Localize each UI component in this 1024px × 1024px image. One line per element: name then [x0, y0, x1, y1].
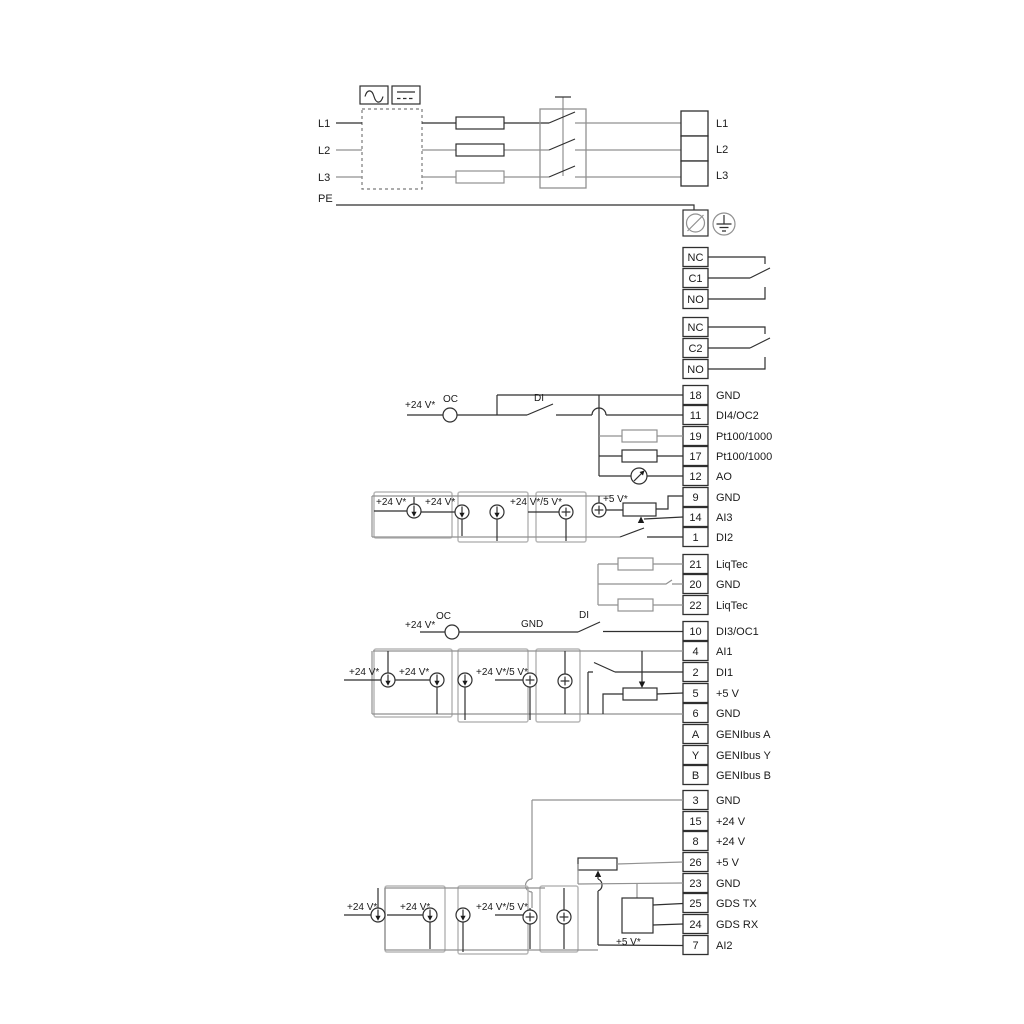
terminal-label: DI2 — [716, 532, 733, 544]
wiring-diagram: L1 L2 L3 PE L1 L2 — [0, 0, 1024, 1024]
terminal-cell-l3 — [681, 161, 708, 186]
relay2-nc-label: NC — [688, 322, 704, 334]
sensor-loop-icon — [523, 673, 537, 687]
wires-switch-to-terminals — [575, 123, 681, 177]
terminal-num: 6 — [692, 708, 698, 720]
mains-out-l1-label: L1 — [716, 118, 728, 130]
v24-label: +24 V* — [405, 620, 435, 631]
terminal-label: GND — [716, 492, 741, 504]
terminal-strip3: 3 15 8 26 23 25 24 7 GND +24 V +24 V +5 … — [683, 791, 759, 955]
v24v5-label: +24 V*/5 V* — [510, 497, 562, 508]
relay2-no-label: NO — [687, 364, 704, 376]
terminal-label: GDS RX — [716, 919, 759, 931]
wire-pe — [336, 205, 694, 210]
sensor-24v-icon — [458, 673, 472, 687]
sensor-24v-icon — [456, 908, 470, 922]
terminal-label: +5 V — [716, 857, 740, 869]
mains-in-l3-label: L3 — [318, 172, 330, 184]
terminal-num: 2 — [692, 667, 698, 679]
terminal-num: 22 — [689, 600, 701, 612]
wire-pot-to-gnd9 — [656, 496, 683, 509]
terminal-label: GND — [716, 878, 741, 890]
ai3-sensor-row: +24 V* +24 V* +24 V*/5 V* +5 V* — [372, 492, 683, 542]
main-switch-blades — [549, 112, 575, 177]
ai2-potentiometer — [578, 858, 617, 870]
v24-label: +24 V* — [349, 667, 379, 678]
terminal-num: 21 — [689, 559, 701, 571]
terminal-num: 1 — [692, 532, 698, 544]
fuse-l3 — [456, 171, 504, 183]
terminal-label: GND — [716, 390, 741, 402]
terminal-label: +24 V — [716, 816, 746, 828]
terminal-label: Pt100/1000 — [716, 431, 772, 443]
pt100-resistor-17 — [622, 450, 657, 462]
sensor-24v-icon — [430, 673, 444, 687]
mains-in-pe-label: PE — [318, 193, 333, 205]
gds-tx-rx-wires — [653, 904, 683, 926]
relay1-no-label: NO — [687, 294, 704, 306]
mains-out-l2-label: L2 — [716, 144, 728, 156]
terminal-num: 8 — [692, 836, 698, 848]
sensor-24v-icon — [423, 908, 437, 922]
terminal-num: 9 — [692, 492, 698, 504]
terminal-label: GND — [716, 708, 741, 720]
mains-in-l2-label: L2 — [318, 145, 330, 157]
terminal-label: +24 V — [716, 836, 746, 848]
terminal-cell-l1 — [681, 111, 708, 136]
wiring-diagram-page: L1 L2 L3 PE L1 L2 — [0, 0, 1024, 1024]
sensor-loop-icon — [557, 910, 571, 924]
pt100-resistor-19 — [622, 430, 657, 442]
terminal-label: LiqTec — [716, 600, 748, 612]
relay2-contact-blade — [708, 338, 770, 348]
terminal-label: DI1 — [716, 667, 733, 679]
terminal-num: 15 — [689, 816, 701, 828]
ai1-potentiometer — [623, 688, 657, 700]
wire-ai2 — [598, 945, 683, 946]
sensor-option-box — [536, 649, 580, 722]
terminal-label: +5 V — [716, 688, 740, 700]
terminal-label: AI3 — [716, 512, 733, 524]
terminal-strip2: 10 4 2 5 6 A Y B DI3/OC1 AI1 DI1 +5 V GN… — [683, 622, 771, 785]
v24v5-label: +24 V*/5 V* — [476, 902, 528, 913]
sensor-24v-icon — [371, 908, 385, 922]
terminal-label: GND — [716, 579, 741, 591]
relay1-contact-blade — [708, 268, 770, 278]
mains-in-l1-label: L1 — [318, 118, 330, 130]
dc-symbol-box — [392, 86, 420, 104]
di1-switch-blade — [594, 663, 615, 673]
terminal-num: 12 — [689, 471, 701, 483]
di3-switch-blade — [578, 622, 600, 632]
terminal-label: GDS TX — [716, 898, 757, 910]
relay1-nc-label: NC — [688, 252, 704, 264]
oc-output-icon — [443, 408, 457, 422]
fuse-l2 — [456, 144, 504, 156]
terminal-label: GENIbus A — [716, 729, 771, 741]
v24-label: +24 V* — [376, 497, 406, 508]
terminal-num: 11 — [690, 410, 701, 422]
terminal-label: AI2 — [716, 940, 733, 952]
terminal-label: GENIbus B — [716, 770, 771, 782]
terminal-num: 3 — [692, 795, 698, 807]
terminal-num: 10 — [689, 626, 701, 638]
strip2-wiring: +24 V* OC GND DI +24 V* +24 V* +24 V*/5 … — [344, 610, 683, 722]
terminal-label: LiqTec — [716, 559, 748, 571]
v24-label: +24 V* — [425, 497, 455, 508]
sensor-24v-icon — [455, 505, 469, 519]
sensor-24v-icon — [490, 505, 504, 519]
terminal-num: 4 — [692, 646, 698, 658]
sensor-loop-icon — [558, 674, 572, 688]
gnd3-loop-with-hop — [526, 800, 684, 908]
wire-gnd18-loop — [497, 395, 683, 415]
sensor-loop-icon — [592, 503, 606, 517]
sensor2-stubs — [395, 680, 437, 714]
liqtec-resistor-21 — [618, 558, 653, 570]
sensor-24v-icon — [407, 504, 421, 518]
terminal-num: 5 — [692, 688, 698, 700]
wire-di4-with-hop — [556, 408, 683, 415]
relay1-section: NC C1 NO — [683, 248, 770, 309]
wire-wiper-to-ai3 — [644, 517, 683, 519]
pot-wiper-arrowhead — [638, 517, 644, 524]
sensor-loop-icon — [523, 910, 537, 924]
terminal-num: A — [692, 729, 700, 741]
converter-dashed-box — [362, 109, 422, 189]
terminal-label: DI4/OC2 — [716, 410, 759, 422]
fuse-l1 — [456, 117, 504, 129]
oc-label: OC — [443, 394, 458, 405]
terminal-num: 14 — [689, 512, 701, 524]
terminal-num: 23 — [689, 878, 701, 890]
terminal-label: GENIbus Y — [716, 750, 771, 762]
terminal-num: 19 — [689, 431, 701, 443]
di4-switch-blade — [527, 404, 553, 415]
di2-switch-blade — [620, 528, 644, 537]
liqtec-resistor-22 — [618, 599, 653, 611]
terminal-label: DI3/OC1 — [716, 626, 759, 638]
terminal-strip1: 18 11 19 17 12 9 14 1 GND DI4/OC2 Pt100/… — [683, 386, 772, 547]
v24-label: +24 V* — [405, 400, 435, 411]
terminal-label: GND — [716, 795, 741, 807]
relay2-section: NC C2 NO — [683, 318, 770, 379]
v5-label: +5 V* — [616, 937, 641, 948]
wire-pot-to-5v26 — [617, 862, 683, 864]
terminal-num: Y — [692, 750, 700, 762]
terminal-num: B — [692, 770, 699, 782]
oc-label: OC — [436, 611, 451, 622]
terminal-num: 20 — [689, 579, 701, 591]
ai3-potentiometer — [623, 503, 656, 516]
di-label: DI — [534, 393, 544, 404]
mains-output-block: L1 L2 L3 — [681, 111, 728, 186]
di-label: DI — [579, 610, 589, 621]
terminal-num: 24 — [689, 919, 701, 931]
wiper-stem-with-hop — [598, 876, 602, 945]
oc-output-icon — [445, 625, 459, 639]
relay1-c1-label: C1 — [688, 273, 702, 285]
sensor2-stubs — [387, 915, 430, 949]
v24v5-label: +24 V*/5 V* — [476, 667, 528, 678]
mains-input-section: L1 L2 L3 PE L1 L2 — [318, 86, 735, 236]
terminal-num: 7 — [692, 940, 698, 952]
terminal-label: Pt100/1000 — [716, 451, 772, 463]
sensor-24v-icon — [381, 673, 395, 687]
terminal-num: 17 — [689, 451, 701, 463]
terminal-num: 25 — [689, 898, 701, 910]
strip1-wiring: +24 V* OC DI — [405, 393, 683, 484]
pot-wiper-arrowhead — [639, 682, 645, 689]
gds-sensor-box — [622, 898, 653, 933]
terminal-num: 26 — [689, 857, 701, 869]
v24-label: +24 V* — [399, 667, 429, 678]
terminal-label: AI1 — [716, 646, 733, 658]
terminal-label: AO — [716, 471, 732, 483]
gnd-label: GND — [521, 619, 543, 630]
terminal-cell-l2 — [681, 136, 708, 161]
sensor-loop-icon — [559, 505, 573, 519]
liqtec-strip: 21 20 22 LiqTec GND LiqTec — [598, 555, 748, 615]
mains-out-l3-label: L3 — [716, 170, 728, 182]
terminal-num: 18 — [689, 390, 701, 402]
strip3-wiring: +5 V* +24 V* +24 V* +24 V*/5 V* — [344, 800, 683, 954]
relay2-c2-label: C2 — [688, 343, 702, 355]
